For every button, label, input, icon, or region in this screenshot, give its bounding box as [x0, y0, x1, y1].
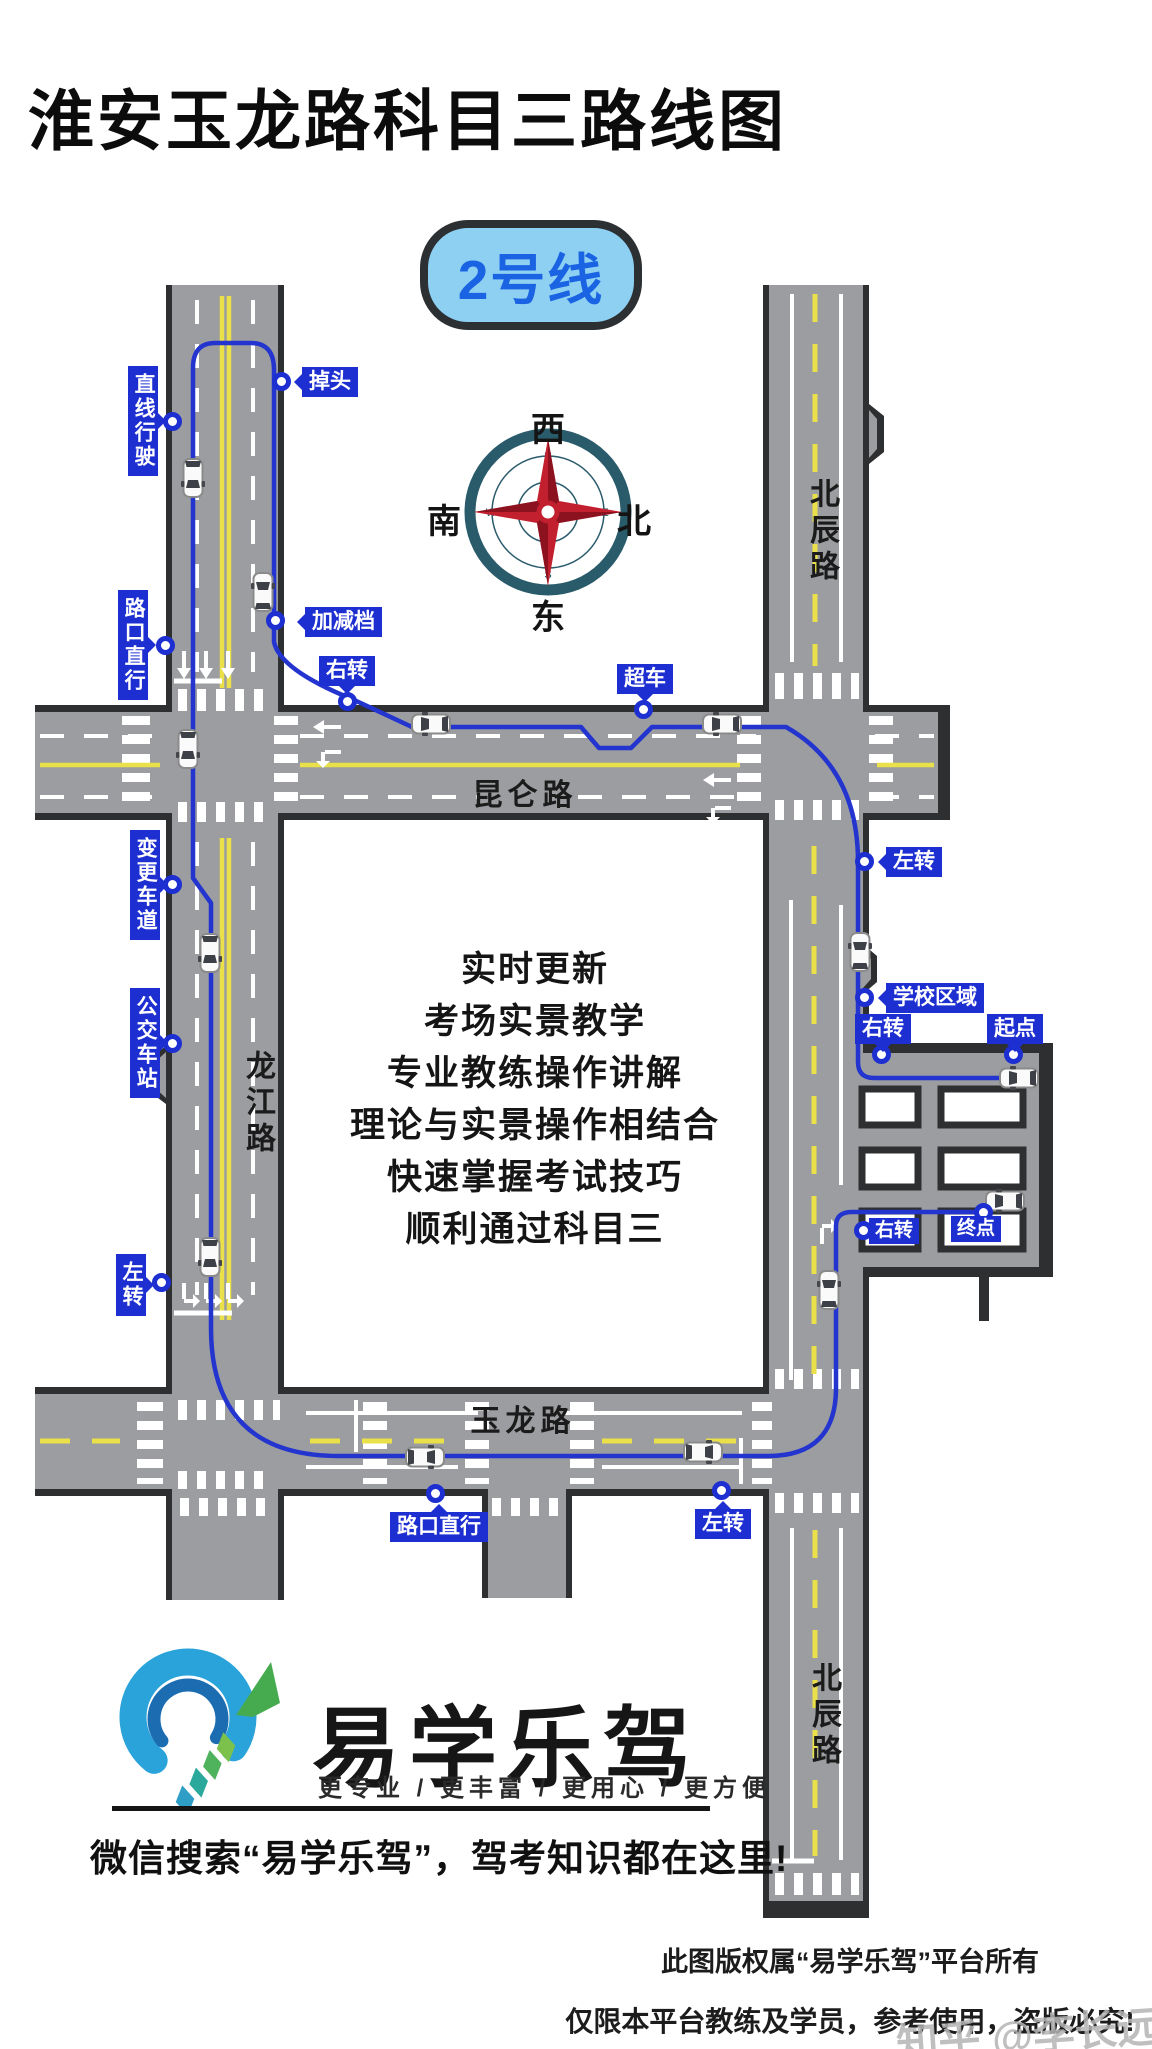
promo-line: 考场实景教学 [290, 996, 780, 1048]
promo-text-block: 实时更新 考场实景教学 专业教练操作讲解 理论与实景操作相结合 快速掌握考试技巧… [290, 944, 780, 1256]
road-name-yulong: 玉龙路 [453, 1396, 593, 1440]
route-label-left-turn-left: 左转 [116, 1254, 146, 1316]
brand-divider [112, 1806, 710, 1811]
route-label-bus-stop: 公交车站 [130, 988, 160, 1098]
route-label-right-turn-end: 右转 [869, 1218, 919, 1244]
compass-north-label: 北 [612, 494, 656, 543]
route-label-school-zone: 学校区域 [886, 983, 984, 1013]
wechat-search-text: 微信搜索“易学乐驾”，驾考知识都在这里! [90, 1828, 788, 1882]
compass-east-label: 东 [526, 590, 570, 639]
promo-line: 顺利通过科目三 [290, 1204, 780, 1256]
route-label-left-turn-right: 左转 [886, 847, 942, 877]
copyright-line-1: 此图版权属“易学乐驾”平台所有 [560, 1940, 1140, 1979]
route-label-lane-change: 变更车道 [130, 830, 160, 940]
road-name-longjiang: 龙江路 [235, 1050, 279, 1158]
route-label-straight-drive: 直线行驶 [128, 366, 158, 476]
promo-line: 专业教练操作讲解 [290, 1048, 780, 1100]
screenshot-root: N E S W 淮安玉龙路科目三路线图 2号线 西 南 北 东 昆仑路 北辰路 … [0, 0, 1152, 2049]
promo-line: 快速掌握考试技巧 [290, 1152, 780, 1204]
road-name-beichen-bottom: 北辰路 [801, 1662, 845, 1770]
compass-south-label: 南 [422, 494, 466, 543]
line-badge: 2号线 [420, 220, 642, 330]
route-label-start-point: 起点 [987, 1014, 1043, 1044]
route-label-right-turn-start: 右转 [855, 1014, 911, 1044]
compass-west-label: 西 [526, 402, 570, 451]
road-name-kunlun: 昆仑路 [455, 770, 595, 814]
route-label-cross-straight-bottom: 路口直行 [390, 1512, 488, 1542]
promo-line: 理论与实景操作相结合 [290, 1100, 780, 1152]
route-label-end-point: 终点 [951, 1216, 1001, 1242]
brand-tagline: 更专业 / 更丰富 / 更用心 / 更方便 [318, 1768, 771, 1803]
promo-line: 实时更新 [290, 944, 780, 996]
road-name-beichen-top: 北辰路 [799, 478, 843, 586]
brand-logo-icon [88, 1645, 303, 1810]
route-dot-gear-shift [266, 611, 285, 630]
route-label-cross-straight-left: 路口直行 [118, 590, 148, 700]
page-title: 淮安玉龙路科目三路线图 [28, 68, 787, 164]
route-label-uturn: 掉头 [302, 367, 358, 397]
route-label-gear-shift: 加减档 [305, 607, 382, 637]
compass-icon: N E S W [470, 434, 626, 590]
route-label-overtake: 超车 [617, 664, 673, 694]
route-label-left-turn-bottom: 左转 [695, 1509, 751, 1539]
line-badge-label: 2号线 [458, 235, 605, 315]
route-label-right-turn-top: 右转 [319, 656, 375, 686]
